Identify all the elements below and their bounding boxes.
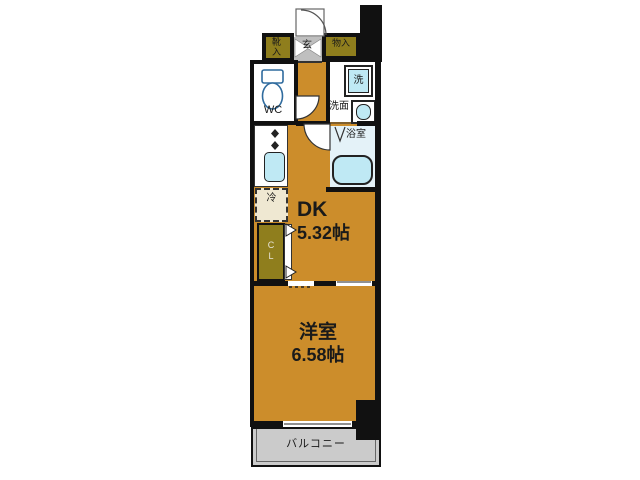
western-room-label: 洋室 6.58帖	[268, 323, 368, 365]
bathroom-label: 浴室	[346, 130, 366, 141]
western-room-name: 洋室	[268, 323, 368, 343]
wc-door-arc-icon	[296, 96, 319, 119]
hall-door-arc-icon	[304, 124, 330, 150]
washroom-label: 洗面	[329, 102, 349, 113]
entrance-door-icon	[296, 9, 326, 36]
dk-size: 5.32帖	[297, 224, 350, 243]
wc-label: WC	[256, 105, 290, 117]
entrance-label: 玄	[302, 41, 312, 52]
storage-label: 物入	[326, 39, 356, 48]
closet-label: CL	[266, 240, 275, 266]
floor-plan: 洗 バルコニー	[0, 0, 640, 480]
dk-room-label: DK 5.32帖	[297, 199, 350, 243]
bathroom-door-v-icon	[335, 127, 345, 141]
refrigerator-label: 冷	[255, 194, 288, 205]
stove-burners-icon	[271, 129, 279, 150]
dk-name: DK	[297, 199, 350, 221]
closet-arrow-top-icon	[286, 224, 296, 236]
western-room-size: 6.58帖	[268, 346, 368, 365]
closet-arrow-bottom-icon	[286, 266, 296, 278]
shoe-cabinet-label: 靴入	[271, 37, 280, 59]
